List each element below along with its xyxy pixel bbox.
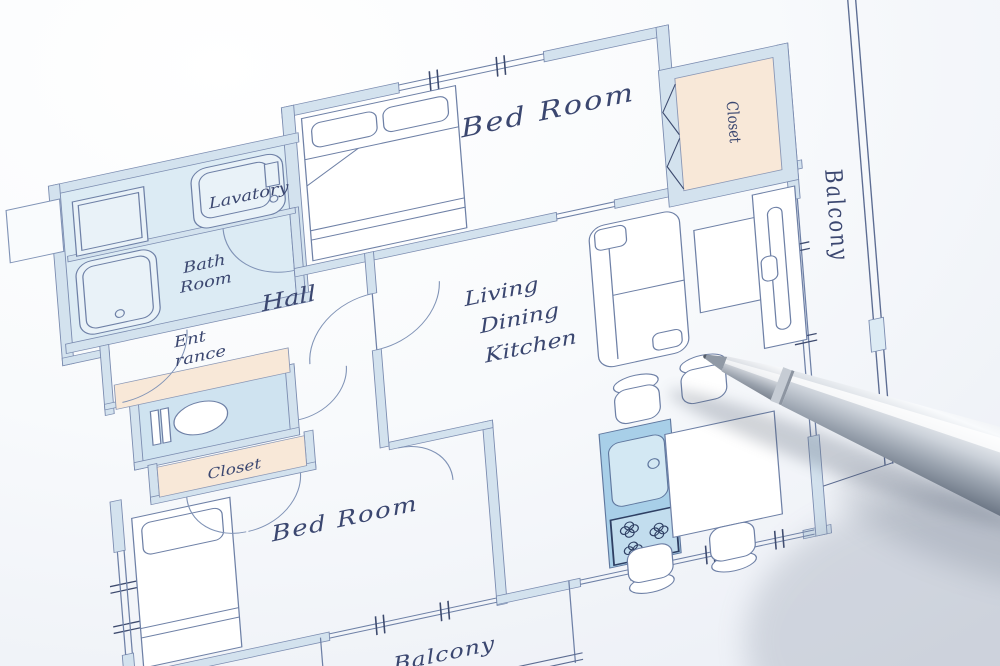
bedroom-bottom-label: Bed Room: [270, 490, 419, 547]
sofa-icon: [588, 209, 690, 370]
balcony-right-label: Balcony: [819, 165, 853, 264]
bedroom-top-label: Bed Room: [459, 77, 637, 144]
bed-bottom-icon: [132, 497, 242, 666]
closet-top-label: Closet: [722, 99, 744, 145]
floor-plan-canvas: Bed Room Closet Balcony Lavatory Bath Ro…: [0, 0, 1000, 666]
floor-plan: Bed Room Closet Balcony Lavatory Bath Ro…: [2, 0, 906, 666]
balcony-bottom-label: Balcony: [391, 633, 496, 666]
floor-plan-photo: Bed Room Closet Balcony Lavatory Bath Ro…: [0, 0, 1000, 666]
bed-top-icon: [302, 86, 467, 261]
meter-box: [6, 199, 64, 263]
bedroom-bottom-window: [117, 550, 132, 654]
